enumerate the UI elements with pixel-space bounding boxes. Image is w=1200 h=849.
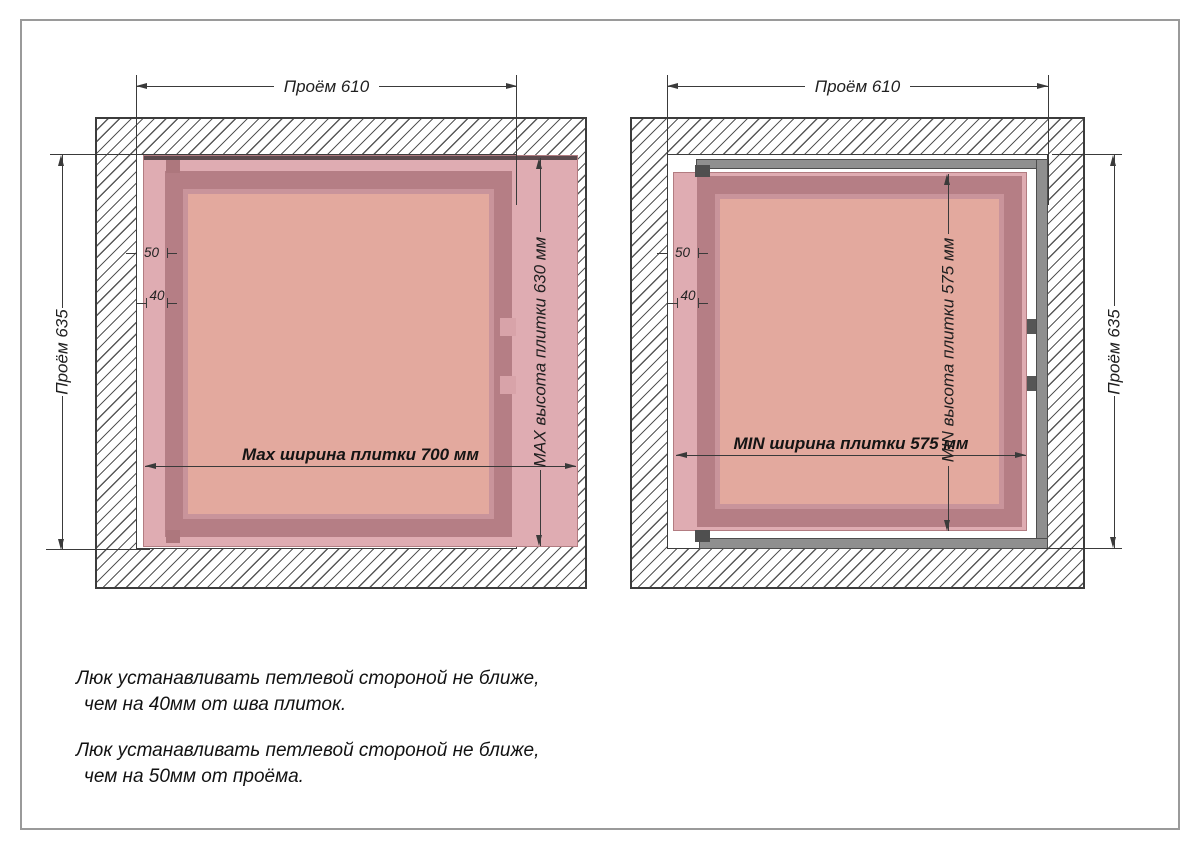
opening-height-label: Проём 635 — [54, 309, 71, 394]
latch-bottom-icon — [1027, 376, 1036, 391]
drawing-sheet: Проём 610 Проём 635 50 40 — [0, 0, 1200, 849]
tile-height-label: MIN высота плитки 575 мм — [940, 238, 957, 463]
offset-40-label: 40 — [143, 289, 171, 303]
hinge-bottom-icon — [166, 530, 180, 543]
metal-frame-right — [1036, 159, 1048, 549]
offset-50-label: 50 — [667, 246, 698, 260]
opening-width-label: Проём 610 — [274, 77, 379, 97]
opening-width-label: Проём 610 — [805, 77, 910, 97]
opening-height-label: Проём 635 — [1106, 309, 1123, 394]
hinge-top-icon — [695, 165, 710, 177]
latch-top-icon — [500, 318, 516, 336]
offset-40-label: 40 — [674, 289, 702, 303]
tile-width-label: MIN ширина плитки 575 мм — [676, 434, 1026, 454]
frame-top-edge — [144, 156, 577, 160]
tile-width-label: Max ширина плитки 700 мм — [145, 445, 576, 465]
metal-frame-top — [696, 159, 1048, 169]
note-2-line-2: чем на 50мм от проёма. — [84, 766, 304, 789]
latch-top-icon — [1027, 319, 1036, 334]
note-1-line-1: Люк устанавливать петлевой стороной не б… — [76, 668, 539, 691]
tile-height-label: MAX высота плитки 630 мм — [532, 237, 549, 467]
latch-bottom-icon — [500, 376, 516, 394]
hinge-bottom-icon — [695, 530, 710, 542]
hinge-top-icon — [166, 160, 180, 173]
offset-50-label: 50 — [136, 246, 167, 260]
door-panel — [183, 189, 494, 519]
metal-frame-bottom — [699, 538, 1048, 549]
door-panel — [715, 194, 1004, 509]
note-2-line-1: Люк устанавливать петлевой стороной не б… — [76, 740, 539, 763]
note-1-line-2: чем на 40мм от шва плиток. — [84, 694, 346, 717]
